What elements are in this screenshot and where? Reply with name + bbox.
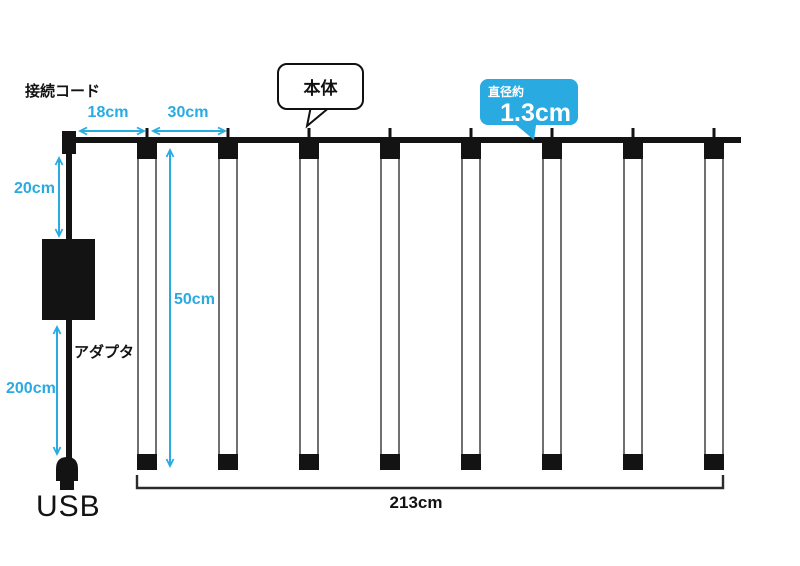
upper-cord <box>66 153 72 239</box>
usb-plug <box>56 457 78 490</box>
usb-label: USB <box>36 492 101 522</box>
led-tube <box>623 128 643 470</box>
led-tube <box>704 128 724 470</box>
main-cord <box>65 137 741 143</box>
led-tube <box>542 128 562 470</box>
product-dimension-diagram: 接続コード 18cm 30cm 20cm 50cm 200cm アダプタ USB… <box>0 0 800 566</box>
diagram-canvas <box>0 0 800 566</box>
diameter-callout: 直径約 1.3cm <box>480 79 578 125</box>
led-tube <box>218 128 238 470</box>
lower-cord <box>66 320 72 458</box>
led-tube <box>380 128 400 470</box>
main-body-label: 本体 <box>304 74 338 99</box>
led-tube <box>299 128 319 470</box>
connection-cord-label: 接続コード <box>25 84 100 99</box>
dim-200cm-label: 200cm <box>6 381 56 397</box>
dim-30cm-label: 30cm <box>168 105 209 121</box>
dim-18cm-label: 18cm <box>88 105 129 121</box>
cord-end-connector <box>62 131 76 154</box>
diameter-value-label: 1.3cm <box>488 99 571 128</box>
led-tube <box>137 128 157 470</box>
bracket-213cm <box>137 475 723 488</box>
adapter-box <box>42 239 95 320</box>
adapter-label: アダプタ <box>74 345 134 360</box>
main-body-callout: 本体 <box>277 63 364 110</box>
led-tube <box>461 128 481 470</box>
diameter-prefix-label: 直径約 <box>488 83 571 100</box>
dim-20cm-label: 20cm <box>14 181 55 197</box>
dim-50cm-label: 50cm <box>174 292 215 308</box>
total-width-label: 213cm <box>390 494 443 511</box>
